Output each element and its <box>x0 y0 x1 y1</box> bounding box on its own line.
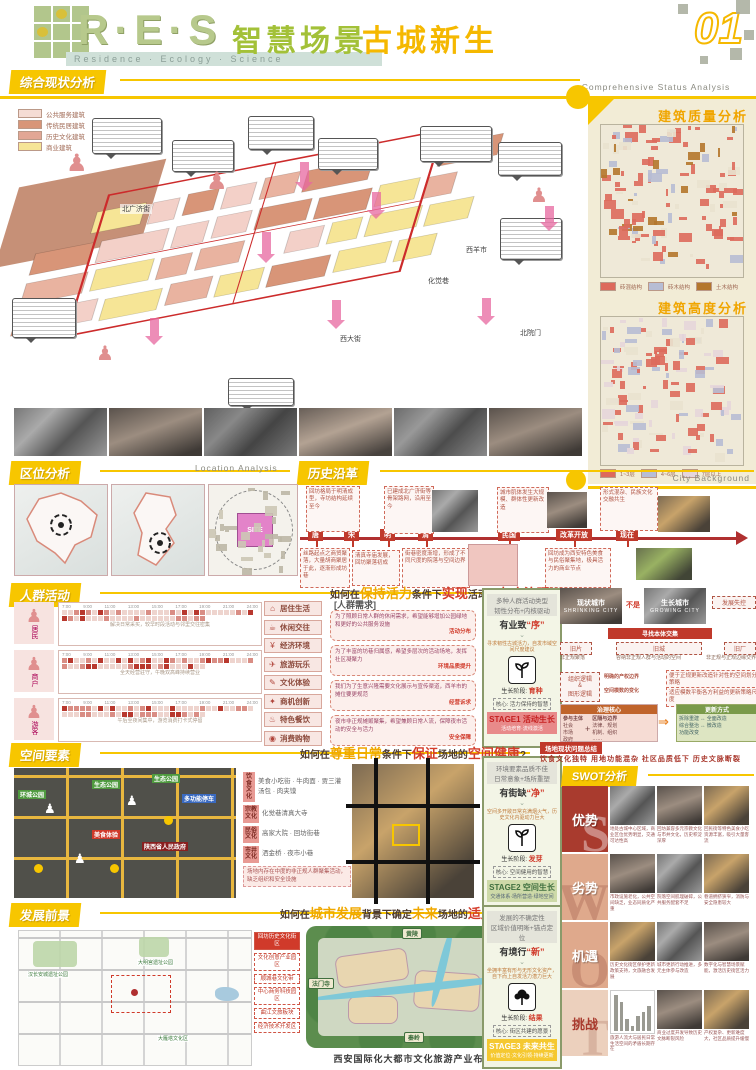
activity-cell <box>176 706 181 711</box>
map-block <box>618 236 631 240</box>
activity-cell <box>104 706 109 711</box>
map-block <box>700 143 705 151</box>
activity-cell <box>128 706 133 711</box>
map-block <box>614 421 627 424</box>
quality-map <box>600 124 744 278</box>
activity-cell <box>74 610 79 615</box>
activity-cell <box>128 658 133 663</box>
map-block <box>671 382 679 385</box>
map-block <box>727 137 733 140</box>
activity-cell <box>200 610 205 615</box>
swot-photo <box>657 990 702 1029</box>
poster-title-cn1: 智慧场景 <box>232 16 368 60</box>
group-caption: 午后至夜间集中，游览消费打卡式停留 <box>59 717 261 724</box>
map-block <box>732 212 737 216</box>
poster-root: R·E·S Residence · Ecology · Science 智慧场景… <box>0 0 756 1070</box>
map-block <box>675 204 678 209</box>
map-block <box>652 367 660 371</box>
activity-cell <box>116 610 121 615</box>
street-label: 化觉巷 <box>426 276 451 286</box>
stage1-box: 多种人群活动类型韧性分布+内核驱动 有业致“序” ⌄ 寻求韧性古城活力，自发市域… <box>482 588 562 748</box>
map-block <box>258 546 263 552</box>
activity-cell <box>158 706 163 711</box>
map-block <box>238 541 246 549</box>
map-block <box>716 439 723 446</box>
activity-cell <box>200 658 205 663</box>
stage3-heading: 发展的不确定性区域价值明晰+锚点定位 <box>487 911 558 943</box>
section-title-history: 历史沿革 <box>297 461 370 485</box>
need-bubble: 我们为了生意兴隆需要文化展示与宣传渠道，西羊市的摊位要更规范经营诉求 <box>330 680 476 711</box>
green-patch <box>33 941 77 967</box>
activity-cell <box>182 610 187 615</box>
map-block <box>700 433 704 437</box>
activity-cell <box>170 610 175 615</box>
swot-photo <box>657 786 702 825</box>
activity-cell <box>242 610 247 615</box>
map-block <box>209 529 216 538</box>
map-block <box>733 217 737 224</box>
map-block <box>627 327 641 334</box>
speech-bubble <box>498 142 562 176</box>
map-block <box>710 385 724 388</box>
stage2-phase: 生长阶段: 发芽 <box>501 854 542 864</box>
plan-label: 曲江文旅板块 <box>254 1008 300 1019</box>
tree-node: 旧厂 <box>724 642 756 655</box>
map-block <box>610 327 614 333</box>
shopping-icon: ◉ <box>268 734 277 743</box>
map-block <box>671 184 674 193</box>
street-collage-photo <box>352 764 474 898</box>
legend-swatch <box>648 282 664 291</box>
timeline-note: 城市肌体发生大规模、群体性更新改造 <box>497 487 549 533</box>
map-block <box>263 491 267 500</box>
axon-building <box>155 252 192 279</box>
map-block <box>701 328 704 334</box>
stage3-footer: STAGE3 未来共生价值定位·文化引领·持续更新 <box>487 1039 558 1061</box>
activity-cell <box>62 712 67 717</box>
map-block <box>242 568 252 576</box>
map-block <box>219 510 223 519</box>
activity-cell <box>86 658 91 663</box>
need-tag: 经营诉求 <box>335 700 471 708</box>
map-block <box>646 353 652 356</box>
bar <box>647 1006 651 1031</box>
person-icon: ♟ <box>26 607 42 625</box>
corner-label: 黄陵 <box>402 928 422 939</box>
shrinking-city-photo: 现状城市SHRINKING CITY <box>560 588 622 624</box>
site-photo <box>204 408 297 456</box>
group-silhouette: ♟商户 <box>14 650 54 692</box>
activity-cell <box>140 706 145 711</box>
map-block <box>634 181 642 186</box>
map-block <box>642 211 645 218</box>
map-block <box>720 173 725 177</box>
chevron-down-icon: ⌄ <box>519 960 525 966</box>
city-plan-map: 汉长安城遗址公园 大明宫遗址公园 大雁塔文化区 <box>18 930 252 1066</box>
tree-icon <box>508 983 536 1011</box>
map-block <box>633 360 642 366</box>
corner-label: 秦岭 <box>404 1032 424 1043</box>
map-block <box>641 328 646 332</box>
speech-bubble <box>420 126 492 162</box>
activity-cell <box>134 610 139 615</box>
section-title-prospect: 发展前景 <box>9 903 82 927</box>
map-block <box>721 410 724 417</box>
governance-box: 治理核心 参与主体社会 市场 政府 + 区隔与边界法律、规划 机制、组织 …… <box>560 704 658 742</box>
history-map-thumb <box>468 544 518 586</box>
map-block <box>603 422 613 426</box>
activity-cell <box>62 616 67 621</box>
activity-cell <box>80 712 85 717</box>
activity-cell <box>224 658 229 663</box>
innovation-icon: ✦ <box>268 697 277 706</box>
food-icon: ♨ <box>268 715 277 724</box>
activity-cell <box>218 706 223 711</box>
activity-cell <box>236 610 241 615</box>
highlight-frame <box>392 824 420 846</box>
height-title: 建筑高度分析 <box>598 298 748 317</box>
activity-cell <box>194 610 199 615</box>
map-block <box>710 434 713 442</box>
sprout-icon <box>508 824 536 852</box>
travel-icon: ✈ <box>268 660 277 669</box>
group-silhouette: ♟游客 <box>14 698 54 740</box>
activity-cell <box>74 664 79 669</box>
threat-bar-chart <box>610 990 655 1034</box>
map-block <box>618 395 627 405</box>
speech-bubble <box>318 138 378 170</box>
person-icon: ♟ <box>126 794 138 807</box>
map-block <box>651 357 660 365</box>
need-bubble: 为了照顾日常人群的休闲需求，希望能够增加公园绿地和更好的公共服务设施活动分布 <box>330 610 476 641</box>
map-block <box>704 353 710 356</box>
activity-cell <box>104 658 109 663</box>
map-block <box>281 491 289 495</box>
map-block <box>686 383 695 393</box>
tree-node: 旧片 <box>560 642 592 655</box>
map-block <box>624 219 630 227</box>
activity-cell <box>62 610 67 615</box>
map-block <box>673 361 680 370</box>
map-block <box>688 449 697 453</box>
activity-cell <box>68 616 73 621</box>
green-patch <box>139 937 169 957</box>
swot-photo <box>657 854 702 893</box>
activity-cell <box>188 610 193 615</box>
map-block <box>606 398 619 405</box>
water-patch <box>215 987 239 1001</box>
map-block <box>639 318 643 322</box>
tree-note: 非正规聚落 <box>560 655 610 662</box>
timeline-arrowhead-icon <box>736 531 748 545</box>
activity-cell <box>62 658 67 663</box>
activity-cell <box>86 706 91 711</box>
bar <box>636 1016 640 1030</box>
china-outline <box>15 485 107 575</box>
person-icon: ♟ <box>66 152 88 176</box>
activity-cell <box>110 712 115 717</box>
activity-cell <box>230 658 235 663</box>
china-map <box>14 484 108 576</box>
map-block <box>241 557 253 561</box>
map-block <box>641 258 650 261</box>
axon-building <box>284 225 325 253</box>
activity-cell <box>92 658 97 663</box>
swot-photo <box>704 854 749 893</box>
activity-cell <box>152 658 157 663</box>
map-block <box>702 216 706 220</box>
logic-box: 组织逻辑 & 图形逻辑 <box>560 672 600 702</box>
activity-cell <box>224 610 229 615</box>
arrow-down-icon <box>332 300 341 320</box>
collage-line <box>346 860 480 864</box>
province-map <box>111 484 205 576</box>
map-block <box>609 229 616 235</box>
stage2-key: 有街缺“净” <box>499 786 544 799</box>
swot-photo <box>704 786 749 825</box>
activity-cell <box>206 610 211 615</box>
site-photo <box>489 408 582 456</box>
map-block <box>715 453 725 463</box>
map-block <box>710 204 716 212</box>
map-block <box>716 357 729 363</box>
map-block <box>652 236 656 244</box>
group-caption: 解决日常采买，较早时段活动与邻里交往密集 <box>59 621 261 628</box>
plan-label: 顺城巷文化带 <box>254 974 300 985</box>
activity-cell <box>236 706 241 711</box>
map-block <box>279 566 283 572</box>
activity-cells <box>59 610 261 621</box>
map-block <box>631 234 641 238</box>
deco-square <box>678 4 688 14</box>
activity-cell <box>188 658 193 663</box>
activity-type: ☕休闲交往 <box>264 620 322 635</box>
activity-cell <box>86 664 91 669</box>
activity-chart-residents: 7:009:0011:0013:0015:0017:0019:0021:0024… <box>58 602 262 646</box>
collage-line <box>374 758 378 904</box>
group-silhouette: ♟居民 <box>14 602 54 644</box>
map-block <box>617 366 620 371</box>
gov-boundaries: 区隔与边界法律、规划 机制、组织 …… <box>592 715 617 743</box>
activity-cell <box>104 664 109 669</box>
activity-type: ✈旅游玩乐 <box>264 657 322 672</box>
swot-row-weaknesses: W劣势 市政设施老化，公共空间缺乏，业态同质化严重 院落空间肌理破碎，公共服务配… <box>562 854 752 920</box>
timeline-note: 已建成北广济街等骨架路网，沿用至今 <box>384 486 434 534</box>
arrow-down-icon <box>300 162 309 182</box>
activity-cell <box>98 658 103 663</box>
map-block <box>653 160 659 169</box>
activity-cell <box>200 706 205 711</box>
need-bubble: 夜市非正规摊贩聚集，希望兼顾日常人流，保障夜市活动的安全与活力安全保障 <box>330 715 476 746</box>
leisure-icon: ☕ <box>268 623 277 632</box>
person-icon: ♟ <box>26 703 42 721</box>
activity-cell <box>92 616 97 621</box>
activity-cell <box>176 658 181 663</box>
bar <box>642 1012 646 1031</box>
activity-type: ✎文化体验 <box>264 675 322 690</box>
axon-building <box>170 220 209 248</box>
arrow-right-icon: ⇒ <box>658 714 669 730</box>
map-block <box>668 252 678 258</box>
sprout-icon <box>508 656 536 684</box>
timeline-note: 丝路起点之商贸聚落，大量胡商聚居于此，逐渐形成坊巷 <box>300 548 350 588</box>
activity-cell <box>146 610 151 615</box>
map-block <box>667 129 676 137</box>
activity-cell <box>134 706 139 711</box>
timeline-note: 回坊成为西安特色美食与民俗聚集地，极具活力的商业节点 <box>545 548 611 588</box>
park-label: 大明宫遗址公园 <box>137 959 174 966</box>
map-block <box>695 127 700 130</box>
activity-cell <box>86 610 91 615</box>
speech-bubble <box>92 118 162 154</box>
map-block <box>656 169 668 175</box>
map-block <box>602 331 606 340</box>
speech-bubble <box>248 116 314 150</box>
speech-bubble <box>228 378 294 406</box>
map-block <box>265 506 276 515</box>
activity-cell <box>62 664 67 669</box>
stage2-heading: 环境要素品质不佳日常意象+场所重塑 <box>487 762 558 784</box>
activity-cell <box>206 706 211 711</box>
street-label: 北广济街 <box>120 204 152 214</box>
activity-cell <box>68 610 73 615</box>
activity-cell <box>68 706 73 711</box>
map-label: 生态公园 <box>92 780 120 789</box>
map-block <box>601 169 607 178</box>
stage1-footer: STAGE1 活动生长活动培育·流线激活 <box>487 712 558 734</box>
map-block <box>670 391 680 397</box>
activity-type: ⌂居住生活 <box>264 601 322 616</box>
renew-box: 更新方式 拆除重建 ↔ 全面改造 综合整治 ↔ 微改造 功能改变 <box>676 704 756 742</box>
stage2-footer: STAGE2 空间生长交通体系·场所营造·绿地空间 <box>487 880 558 902</box>
history-photo <box>658 496 710 532</box>
activity-cell <box>68 658 73 663</box>
need-tag: 安全保障 <box>335 735 471 743</box>
activity-type: ✦商机创新 <box>264 694 322 709</box>
map-node <box>164 816 173 825</box>
map-block <box>720 204 723 207</box>
map-block <box>646 331 652 337</box>
map-block <box>696 435 700 440</box>
street-label: 西大街 <box>338 334 363 344</box>
activity-cell <box>212 658 217 663</box>
divider-dot <box>566 470 586 490</box>
activity-cell <box>110 664 115 669</box>
activity-cell <box>170 658 175 663</box>
height-map <box>600 316 744 466</box>
map-block <box>730 255 742 263</box>
activity-cell <box>98 616 103 621</box>
map-label: 陕西省人民政府 <box>142 842 188 851</box>
person-icon: ♟ <box>26 655 42 673</box>
swot-photo <box>610 854 655 893</box>
legend-swatch <box>600 282 616 291</box>
map-block <box>719 319 728 329</box>
logic-result: 明确的产权边界 <box>604 674 662 681</box>
map-block <box>702 154 708 162</box>
economy-icon: ¥ <box>268 641 277 650</box>
city-background-caption: City Background <box>620 473 750 483</box>
activity-cell <box>182 706 187 711</box>
map-block <box>612 135 616 139</box>
map-block <box>609 161 617 167</box>
activity-cell <box>248 706 253 711</box>
axon-building <box>99 288 163 321</box>
map-block <box>723 201 737 208</box>
map-block <box>620 320 626 323</box>
map-block <box>732 162 735 170</box>
stage1-phase: 生长阶段: 育种 <box>501 686 542 696</box>
logic-result: 空间模数的变化 <box>604 688 662 695</box>
map-block <box>695 409 702 417</box>
chevron-down-icon: ⌄ <box>519 633 525 639</box>
map-block <box>616 192 623 194</box>
bar <box>620 1002 624 1030</box>
activity-cell <box>158 658 163 663</box>
map-block <box>700 199 708 206</box>
activity-cell <box>80 658 85 663</box>
activity-cell <box>194 658 199 663</box>
map-block <box>603 143 609 149</box>
map-block <box>272 517 276 524</box>
map-block <box>731 414 741 420</box>
activity-cell <box>164 610 169 615</box>
tree-note: 非正规与正规边缘交界 <box>706 655 756 662</box>
renew-row: 综合整治 ↔ 微改造 <box>679 722 755 729</box>
map-block <box>604 200 616 209</box>
person-icon: ♟ <box>530 186 548 206</box>
activity-cell <box>86 616 91 621</box>
arrow-down-icon <box>262 232 271 254</box>
urban-area <box>348 996 398 1024</box>
culture-list: 饮食文化美食小吃街 · 牛肉面 · 贾三灌汤包 · 肉夹馍 宗教文化化觉巷清真大… <box>243 772 345 866</box>
activity-cell <box>116 658 121 663</box>
map-block <box>672 433 675 438</box>
legend-swatch <box>696 282 712 291</box>
map-block <box>713 350 723 356</box>
arrow-down-icon <box>372 192 381 210</box>
activity-cell <box>164 658 169 663</box>
activity-cell <box>68 712 73 717</box>
deco-square <box>730 48 742 60</box>
swot-photo <box>610 786 655 825</box>
activity-cell <box>122 658 127 663</box>
bar <box>631 1026 635 1031</box>
map-block <box>656 435 666 440</box>
activity-cell <box>80 706 85 711</box>
map-block <box>679 217 687 220</box>
site-frame <box>111 975 171 1013</box>
activity-cell <box>98 712 103 717</box>
bar <box>614 995 618 1031</box>
deco-square <box>736 0 750 14</box>
bar <box>625 1019 629 1030</box>
activity-cell <box>128 610 133 615</box>
activity-cell <box>104 616 109 621</box>
activity-cell <box>158 610 163 615</box>
map-block <box>706 319 713 327</box>
activity-cell <box>170 706 175 711</box>
map-block <box>679 350 684 359</box>
stage3-phase: 生长阶段: 结果 <box>501 1013 542 1023</box>
stage2-box: 环境要素品质不佳日常意象+场所重塑 有街缺“净” ⌄ 空间多开敞日常充满烟火气，… <box>482 756 562 910</box>
park-label: 汉长安城遗址公园 <box>27 971 69 978</box>
map-block <box>633 226 643 231</box>
map-block <box>646 140 656 143</box>
map-block <box>264 553 271 558</box>
map-block <box>670 338 679 347</box>
activity-cell <box>74 706 79 711</box>
